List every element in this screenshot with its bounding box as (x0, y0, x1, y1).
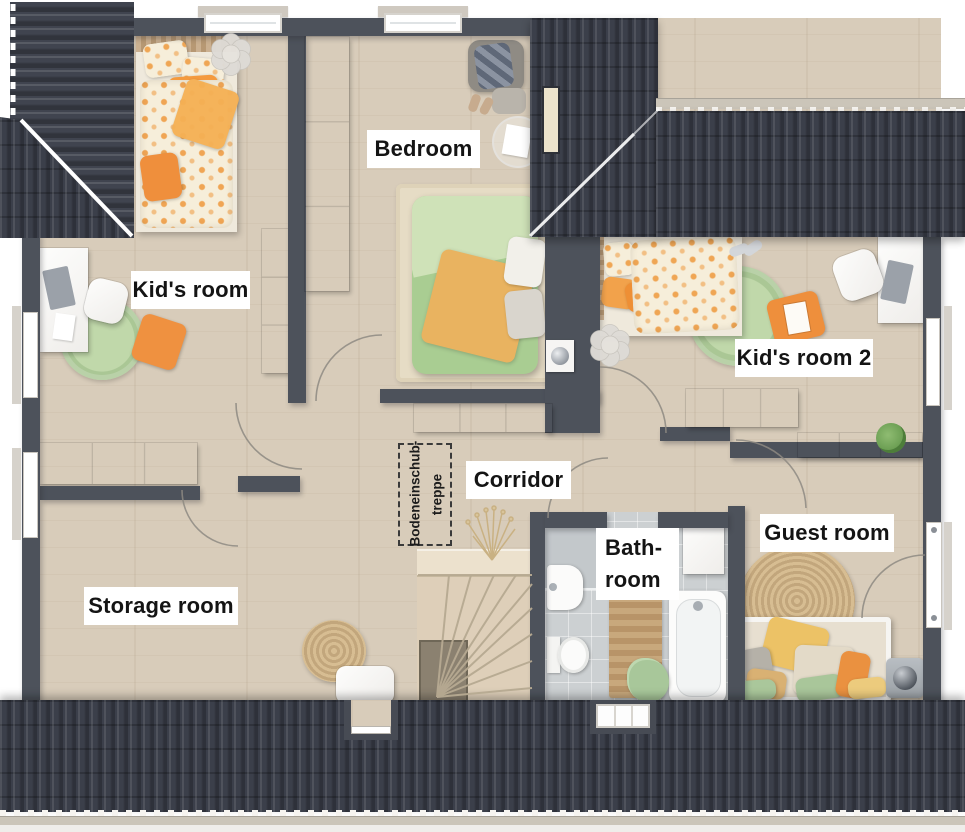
armchair-blanket (473, 42, 515, 91)
window-glass-line (210, 22, 276, 24)
room-label-text: Bath- (605, 532, 662, 564)
storage-table (336, 666, 394, 704)
wall-bedroom-kids2 (545, 237, 600, 433)
wall-kids2-south (660, 427, 730, 441)
kids-room-papers (52, 313, 75, 342)
balcony-door-right (926, 522, 942, 628)
speaker-sphere (893, 666, 917, 690)
bathtub (669, 591, 726, 703)
room-label-kids-room-2: Kid's room 2 (735, 339, 873, 377)
wall-bath-top-right (658, 512, 728, 528)
skylight (542, 86, 560, 154)
bedroom-ottoman (492, 88, 526, 114)
bed-duvet (630, 235, 741, 334)
window-left-2 (23, 452, 38, 538)
door-handle (931, 527, 937, 533)
toilet-bowl (558, 637, 589, 673)
sink-faucet (549, 583, 557, 591)
room-label-corridor: Corridor (466, 461, 571, 499)
wall-bedroom-kids (288, 36, 306, 403)
dormer-floor (351, 700, 391, 728)
bathroom-cabinet (683, 521, 724, 574)
window-sill (12, 448, 21, 540)
window-glass-line (390, 22, 456, 24)
towel-green (627, 658, 669, 702)
bathtub-faucet (693, 601, 703, 611)
room-label-text: Bedroom (375, 136, 473, 162)
blanket-orange (139, 152, 183, 203)
bedroom-wardrobe (305, 37, 349, 291)
room-label-bathroom: Bath- room (596, 528, 679, 600)
bedroom-pillow (503, 236, 547, 289)
wall-corridor-stub (238, 476, 300, 492)
stair-landing (417, 551, 533, 577)
room-label-guest-room: Guest room (760, 514, 894, 552)
window-sill (944, 522, 952, 630)
kids-room-cabinet (262, 229, 290, 373)
room-label-text: Kid's room 2 (737, 345, 872, 371)
guest-speaker (886, 658, 924, 698)
kids-room-sideboard (40, 443, 197, 484)
wall-kids-storage (40, 486, 200, 500)
stair-platform (419, 640, 468, 704)
room-label-text: room (605, 564, 661, 596)
ground-strip (0, 825, 965, 832)
wall-niche-fixture (546, 340, 574, 372)
fixture-knob (551, 347, 569, 365)
staircase (417, 555, 533, 706)
window-sill (12, 306, 21, 404)
room-label-text: Corridor (474, 467, 564, 493)
dormer-bath (590, 700, 656, 734)
wall-bath-top-left (545, 512, 607, 528)
kids-room-2-sideboard (686, 389, 798, 427)
room-label-kids-room: Kid's room (131, 271, 250, 309)
window-right-1 (926, 318, 940, 406)
window-mullion (614, 706, 616, 726)
attic-ladder-label-line2: treppe (430, 443, 447, 547)
kids-room-bed (136, 36, 237, 232)
window-left-1 (23, 312, 38, 398)
bedroom-pillow (504, 288, 547, 340)
dormer-window (596, 704, 650, 728)
window-top-1 (204, 13, 282, 33)
attic-ladder-label-line1: Bodeneinschub- (408, 443, 425, 547)
roof-bottom (0, 700, 965, 812)
corridor-sideboard (414, 404, 552, 432)
dormer-storage (344, 700, 398, 740)
window-top-2 (384, 13, 462, 33)
door-handle (931, 615, 937, 621)
window-sill (944, 306, 952, 410)
guest-daybed (731, 617, 891, 702)
wall-right (923, 237, 941, 706)
roof-top-right-b (656, 111, 965, 237)
roof-top-left (0, 0, 142, 240)
table-papers (502, 124, 533, 158)
plant (876, 423, 906, 453)
room-label-text: Guest room (764, 520, 889, 546)
kids-room-2-bed (592, 236, 742, 336)
wall-bath-left (530, 512, 545, 706)
room-label-text: Storage room (88, 593, 233, 619)
window-mullion (631, 706, 633, 726)
pillow-yellow (847, 676, 887, 700)
room-label-text: Kid's room (132, 277, 248, 303)
room-label-bedroom: Bedroom (367, 130, 480, 168)
wall-guest-left (728, 506, 745, 706)
dormer-window (351, 726, 391, 734)
room-label-storage-room: Storage room (84, 587, 238, 625)
bathtub-basin (676, 599, 721, 697)
floor-plan: Bodeneinschub- treppe Bedroom Kid's room… (0, 0, 965, 832)
